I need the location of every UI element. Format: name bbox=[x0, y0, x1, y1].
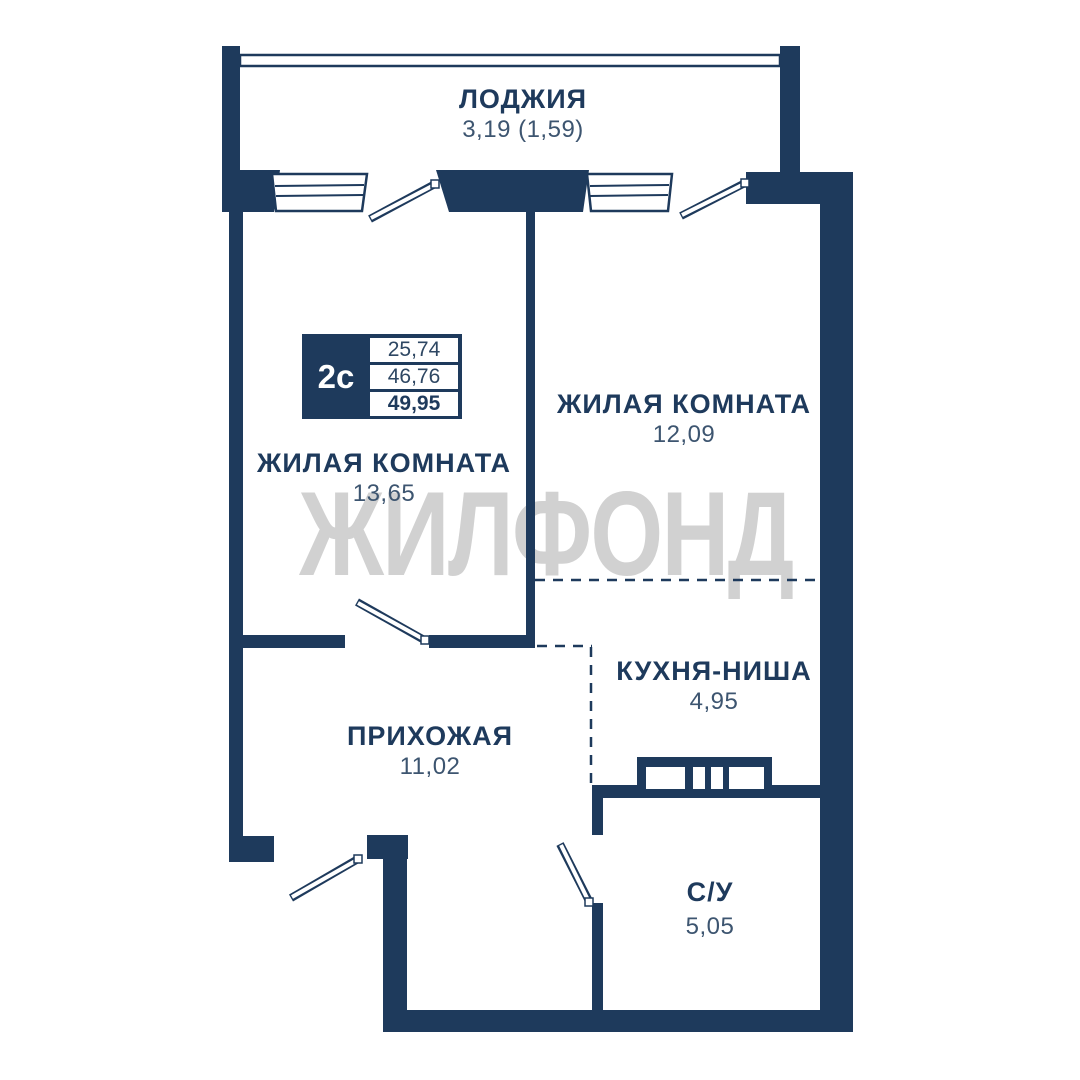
room-area-bathroom: 5,05 bbox=[686, 913, 735, 941]
room-area-hallway: 11,02 bbox=[400, 753, 461, 781]
room-label-living-left: ЖИЛАЯ КОМНАТА bbox=[257, 448, 511, 479]
apartment-info-badge: 2с 25,74 46,76 49,95 bbox=[302, 334, 462, 419]
room-area-living-left: 13,65 bbox=[353, 480, 416, 508]
room-label-loggia: ЛОДЖИЯ bbox=[459, 84, 587, 115]
room-area-loggia: 3,19 (1,59) bbox=[462, 116, 584, 144]
area-total-value: 49,95 bbox=[370, 392, 458, 416]
area-living-value: 25,74 bbox=[370, 338, 458, 362]
room-label-bathroom: С/У bbox=[687, 877, 734, 908]
room-label-hallway: ПРИХОЖАЯ bbox=[347, 721, 513, 752]
room-label-kitchen-niche: КУХНЯ-НИША bbox=[616, 656, 811, 687]
area-without-loggia-value: 46,76 bbox=[370, 365, 458, 389]
room-area-living-right: 12,09 bbox=[653, 421, 716, 449]
apartment-area-table: 25,74 46,76 49,95 bbox=[370, 338, 458, 415]
apartment-type-label: 2с bbox=[306, 338, 366, 415]
floor-plan-page: ЖИЛФОНД bbox=[0, 0, 1080, 1080]
room-label-living-right: ЖИЛАЯ КОМНАТА bbox=[557, 389, 811, 420]
room-area-kitchen-niche: 4,95 bbox=[690, 688, 739, 716]
